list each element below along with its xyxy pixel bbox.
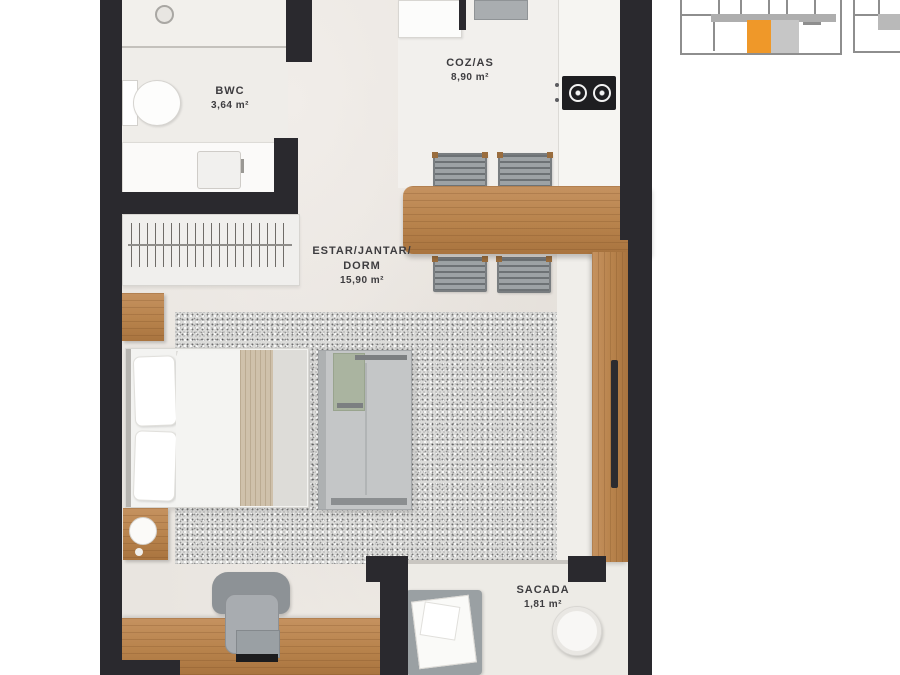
sofa-armrest (337, 403, 363, 408)
cooktop-icon (562, 76, 616, 110)
cooktop-knob (555, 83, 559, 87)
dining-table (403, 186, 652, 254)
shower-area (122, 0, 288, 48)
room-area: 8,90 m² (446, 71, 494, 85)
dining-chair (433, 153, 487, 190)
key-plan-wall (718, 0, 720, 14)
room-name: COZ/AS (446, 56, 494, 71)
tv-rack (592, 252, 628, 562)
wall-left (100, 0, 122, 675)
nightstand (122, 293, 164, 341)
wall-right (628, 0, 652, 675)
lounge-pillow (420, 601, 461, 640)
laptop-screen-edge (236, 654, 278, 662)
room-label-bwc: BWC 3,64 m² (211, 84, 249, 113)
lamp-icon (129, 517, 157, 545)
sofa-armrest (331, 498, 407, 505)
wall-right-kitchen (620, 0, 628, 240)
key-plan-wall (786, 0, 788, 14)
double-bed (125, 348, 309, 508)
room-name-line2: DORM (312, 259, 411, 274)
bed-headboard (126, 349, 131, 507)
floor-plan-page: BWC 3,64 m² COZ/AS 8,90 m² ESTAR/JANTAR/… (0, 0, 900, 675)
balcony-round-table (552, 606, 602, 656)
key-plan-wall (713, 22, 715, 51)
burner-icon (569, 84, 587, 102)
wall-bathroom-upper (286, 0, 312, 62)
cooktop-knob (555, 98, 559, 102)
sofa (318, 350, 412, 510)
wall-bathroom-bottom (122, 192, 298, 214)
key-plan-common-area (878, 14, 900, 30)
room-label-cozas: COZ/AS 8,90 m² (446, 56, 494, 85)
dining-chair (497, 257, 551, 293)
nightstand (123, 508, 168, 560)
key-plan-wall (855, 14, 878, 16)
burner-icon (593, 84, 611, 102)
sofa-armrest (355, 355, 407, 360)
dining-chair (498, 153, 552, 190)
shower-head-icon (155, 5, 174, 24)
toilet-bowl-icon (133, 80, 181, 126)
sofa-back (319, 351, 326, 509)
key-plan-unit-highlight (747, 20, 771, 53)
room-name: SACADA (516, 583, 569, 598)
wall-balcony-mid (568, 556, 606, 582)
tv-icon (611, 360, 618, 488)
wall-counter-stub (459, 0, 466, 30)
key-plan-building-b (853, 0, 900, 53)
pillow (133, 430, 177, 501)
floor-plan: BWC 3,64 m² COZ/AS 8,90 m² ESTAR/JANTAR/… (100, 0, 652, 675)
sofa-seam (365, 363, 367, 495)
lounge-chair (406, 590, 482, 675)
key-plan-wall (740, 0, 742, 14)
bathroom-vanity (122, 142, 276, 196)
wall-balcony-stub (366, 556, 408, 582)
room-area: 1,81 m² (516, 598, 569, 612)
wall-bottom-corner (100, 660, 180, 675)
room-label-estar-jantar-dorm: ESTAR/JANTAR/ DORM 15,90 m² (312, 244, 411, 288)
key-plan-common-area (771, 20, 799, 53)
room-label-sacada: SACADA 1,81 m² (516, 583, 569, 612)
key-plan-wall (803, 22, 821, 25)
wardrobe-rail (128, 244, 292, 246)
kitchen-sink-icon (474, 0, 528, 20)
room-area: 3,64 m² (211, 99, 249, 113)
sink-icon (197, 151, 241, 189)
dining-chair (433, 257, 487, 292)
balcony-glass-door (408, 560, 568, 564)
bed-foot-fold (273, 350, 307, 506)
decor-dot (135, 548, 143, 556)
key-plan-wall (768, 0, 770, 14)
room-name: BWC (211, 84, 249, 99)
faucet-icon (241, 159, 244, 173)
key-plan-wall (682, 14, 711, 16)
room-area: 15,90 m² (312, 274, 411, 288)
room-name: ESTAR/JANTAR/ (312, 244, 411, 259)
wardrobe (122, 214, 300, 286)
key-plan-wall (814, 0, 816, 14)
key-plan-building-a (680, 0, 842, 55)
pillow (133, 355, 177, 426)
bed-throw-blanket (240, 350, 273, 506)
bed-duvet (176, 351, 240, 505)
fridge-icon (398, 0, 462, 38)
